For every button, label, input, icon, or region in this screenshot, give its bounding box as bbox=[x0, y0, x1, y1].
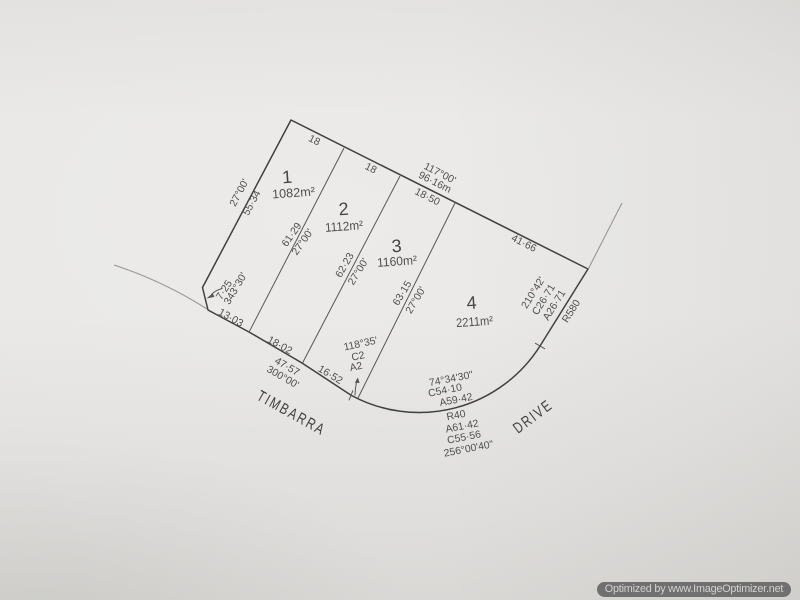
svg-text:2: 2 bbox=[338, 199, 349, 220]
svg-text:1: 1 bbox=[281, 167, 292, 188]
svg-text:DRIVE: DRIVE bbox=[510, 397, 556, 438]
svg-text:1112m²: 1112m² bbox=[325, 218, 364, 235]
svg-text:18: 18 bbox=[306, 133, 321, 148]
svg-text:13·03: 13·03 bbox=[216, 307, 245, 330]
svg-text:3: 3 bbox=[391, 236, 402, 257]
svg-text:2211m²: 2211m² bbox=[456, 314, 494, 331]
svg-text:A2: A2 bbox=[349, 361, 364, 374]
svg-text:18·02: 18·02 bbox=[265, 335, 294, 358]
svg-text:1160m²: 1160m² bbox=[377, 253, 418, 270]
svg-text:R580: R580 bbox=[561, 298, 584, 325]
svg-text:16·52: 16·52 bbox=[316, 364, 345, 387]
svg-text:1082m²: 1082m² bbox=[272, 185, 316, 202]
svg-text:4: 4 bbox=[466, 292, 477, 313]
svg-text:TIMBARRA: TIMBARRA bbox=[254, 388, 329, 440]
svg-text:18: 18 bbox=[363, 161, 378, 176]
